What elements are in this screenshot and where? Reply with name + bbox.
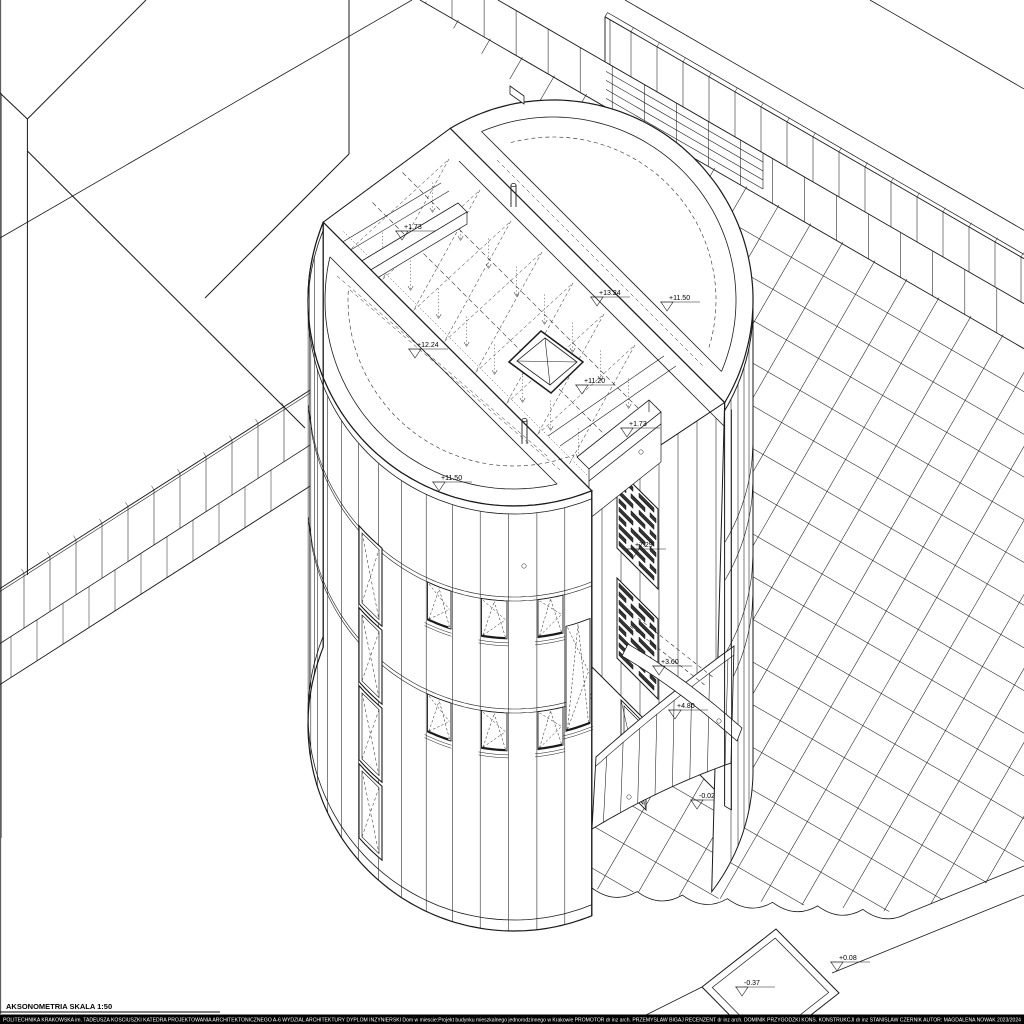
svg-text:+0.08: +0.08 [839, 955, 857, 962]
svg-text:+3.60: +3.60 [661, 659, 679, 666]
svg-text:+11.50: +11.50 [441, 475, 462, 482]
svg-text:+1.73: +1.73 [404, 224, 422, 231]
svg-text:-0.37: -0.37 [744, 980, 760, 987]
svg-text:+1.73: +1.73 [629, 421, 647, 428]
svg-text:+11.50: +11.50 [669, 295, 690, 302]
svg-text:+11.20: +11.20 [584, 378, 605, 385]
svg-text:POLITECHNIKA KRAKOWSKA im. TAD: POLITECHNIKA KRAKOWSKA im. TADEUSZA KOSC… [3, 1018, 1022, 1024]
svg-text:+12.24: +12.24 [417, 342, 439, 349]
svg-text:+13.24: +13.24 [599, 290, 621, 297]
svg-text:-0.02: -0.02 [699, 793, 715, 800]
svg-text:+4.80: +4.80 [677, 703, 695, 710]
svg-text:AKSONOMETRIA SKALA 1:50: AKSONOMETRIA SKALA 1:50 [6, 1002, 112, 1011]
svg-text:+7.29: +7.29 [635, 542, 653, 549]
